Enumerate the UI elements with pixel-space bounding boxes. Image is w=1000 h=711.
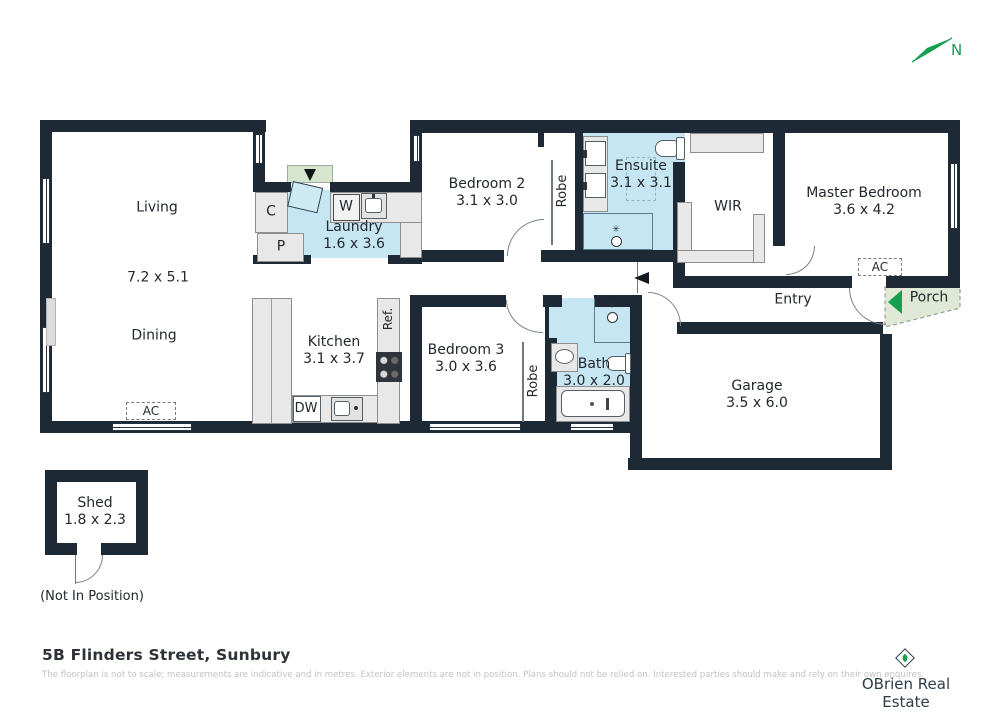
wall — [673, 276, 773, 288]
ensuite-sink — [585, 173, 606, 198]
door-arc-front-entry — [849, 288, 886, 325]
room-name: Garage — [726, 378, 788, 395]
room-dims: 3.5 x 6.0 — [726, 395, 788, 412]
north-arrow-icon — [912, 34, 954, 66]
floorplan: Living 7.2 x 5.1 Dining Laundry 1.6 x 3.… — [0, 0, 1000, 707]
tap-icon — [583, 150, 587, 158]
room-dims: 3.1 x 3.1 — [610, 175, 672, 192]
wall — [410, 295, 422, 433]
wardrobe-shelf — [677, 250, 765, 263]
window — [255, 134, 263, 164]
shed-wall — [101, 543, 148, 555]
room-dims: 3.1 x 3.0 — [449, 193, 526, 210]
room-label-entry: Entry — [774, 292, 811, 309]
wall — [40, 120, 266, 132]
shed-wall — [45, 543, 77, 555]
room-label-wir: WIR — [714, 199, 742, 216]
room-label-dining: Dining — [131, 328, 176, 345]
wall — [422, 295, 506, 307]
wall — [330, 182, 422, 192]
wall — [541, 250, 688, 262]
north-label: N — [951, 41, 962, 59]
address-title: 5B Flinders Street, Sunbury — [42, 646, 291, 664]
wardrobe-shelf — [690, 133, 764, 153]
toilet-tank — [676, 137, 685, 160]
room-name: Bedroom 3 — [428, 342, 505, 359]
window — [413, 135, 420, 162]
door-arc-hall — [648, 292, 681, 326]
wall — [575, 133, 583, 252]
window — [429, 423, 521, 431]
window — [950, 163, 958, 229]
room-name: Laundry — [323, 219, 385, 236]
wall — [886, 276, 948, 288]
stove — [376, 352, 402, 382]
door-arc-master — [786, 246, 815, 275]
wall — [630, 295, 642, 470]
room-dims: 3.6 x 4.2 — [806, 202, 922, 219]
laundry-sink-bowl — [365, 198, 382, 213]
robe-sliding-door — [551, 160, 553, 245]
wall — [538, 133, 544, 147]
door-arc-shed — [75, 555, 103, 583]
hall-direction-arrow-icon — [634, 272, 649, 284]
room-dims: 3.0 x 2.0 — [563, 373, 625, 390]
toilet — [655, 140, 677, 157]
wall — [880, 334, 892, 470]
room-dims: 3.1 x 3.7 — [303, 351, 365, 368]
room-label-bedroom2: Bedroom 2 3.1 x 3.0 — [449, 176, 526, 210]
window — [42, 178, 50, 244]
wall — [628, 458, 892, 470]
brand-logo-icon — [895, 648, 915, 668]
fridge-label: Ref. — [381, 308, 395, 330]
robe-sliding-door — [522, 342, 524, 422]
room-name: Ensuite — [610, 158, 672, 175]
robe-label: Robe — [526, 365, 542, 398]
wall — [773, 133, 785, 246]
room-dims: 3.0 x 3.6 — [428, 359, 505, 376]
room-label-porch: Porch — [910, 290, 949, 307]
shed-door-leaf — [75, 555, 76, 584]
bath-drain-icon — [590, 402, 594, 406]
door-arc-bedroom2 — [507, 219, 544, 256]
ensuite-sink — [585, 141, 606, 166]
laundry-bench — [400, 222, 422, 258]
shed-note: (Not In Position) — [40, 589, 144, 605]
room-label-shed: Shed 1.8 x 2.3 — [64, 495, 126, 529]
wall-recess — [46, 298, 56, 346]
washer-label: W — [339, 199, 353, 216]
shed-wall — [45, 470, 148, 482]
room-name: Shed — [64, 495, 126, 512]
wall — [422, 250, 504, 262]
wall — [410, 120, 960, 133]
ac-label: AC — [872, 260, 888, 274]
tap-icon — [372, 194, 375, 198]
pantry-label: P — [277, 239, 285, 256]
wall — [677, 322, 883, 334]
island-divider — [271, 298, 272, 424]
room-label-laundry: Laundry 1.6 x 3.6 — [323, 219, 385, 253]
room-label-living: Living — [136, 200, 178, 217]
room-name: Bedroom 2 — [449, 176, 526, 193]
window — [570, 423, 614, 431]
brand-name: OBrien Real Estate — [838, 675, 974, 711]
room-label-garage: Garage 3.5 x 6.0 — [726, 378, 788, 412]
room-name: Kitchen — [303, 334, 365, 351]
room-name: Master Bedroom — [806, 185, 922, 202]
ac-label: AC — [143, 404, 159, 418]
room-label-kitchen: Kitchen 3.1 x 3.7 — [303, 334, 365, 368]
leaf-icon — [901, 654, 909, 662]
door-arc-bedroom3 — [506, 300, 543, 333]
disclaimer-text: The floorplan is not to scale; measureme… — [42, 670, 924, 680]
room-label-bath: Bath 3.0 x 2.0 — [563, 356, 625, 390]
wardrobe-shelf — [753, 214, 765, 263]
room-label-master: Master Bedroom 3.6 x 4.2 — [806, 185, 922, 219]
kitchen-sink-bowl — [334, 401, 350, 416]
toilet-tank — [625, 353, 631, 374]
room-label-ensuite: Ensuite 3.1 x 3.1 — [610, 158, 672, 192]
tap-icon — [583, 182, 587, 190]
tap-icon — [606, 398, 609, 410]
dishwasher-label: DW — [295, 401, 318, 417]
room-dims-living: 7.2 x 5.1 — [127, 270, 189, 287]
shower-head-icon — [608, 226, 624, 247]
room-name: Bath — [563, 356, 625, 373]
kitchen-island — [252, 298, 292, 424]
window — [112, 423, 192, 431]
wall — [253, 182, 291, 192]
room-dims: 1.8 x 2.3 — [64, 512, 126, 529]
room-dims: 1.6 x 3.6 — [323, 236, 385, 253]
tap-icon — [354, 406, 358, 410]
room-label-bedroom3: Bedroom 3 3.0 x 3.6 — [428, 342, 505, 376]
robe-label: Robe — [555, 175, 571, 208]
shower-head-icon — [604, 302, 620, 323]
cupboard-label: C — [266, 204, 276, 221]
entry-direction-arrow-icon — [304, 169, 316, 181]
